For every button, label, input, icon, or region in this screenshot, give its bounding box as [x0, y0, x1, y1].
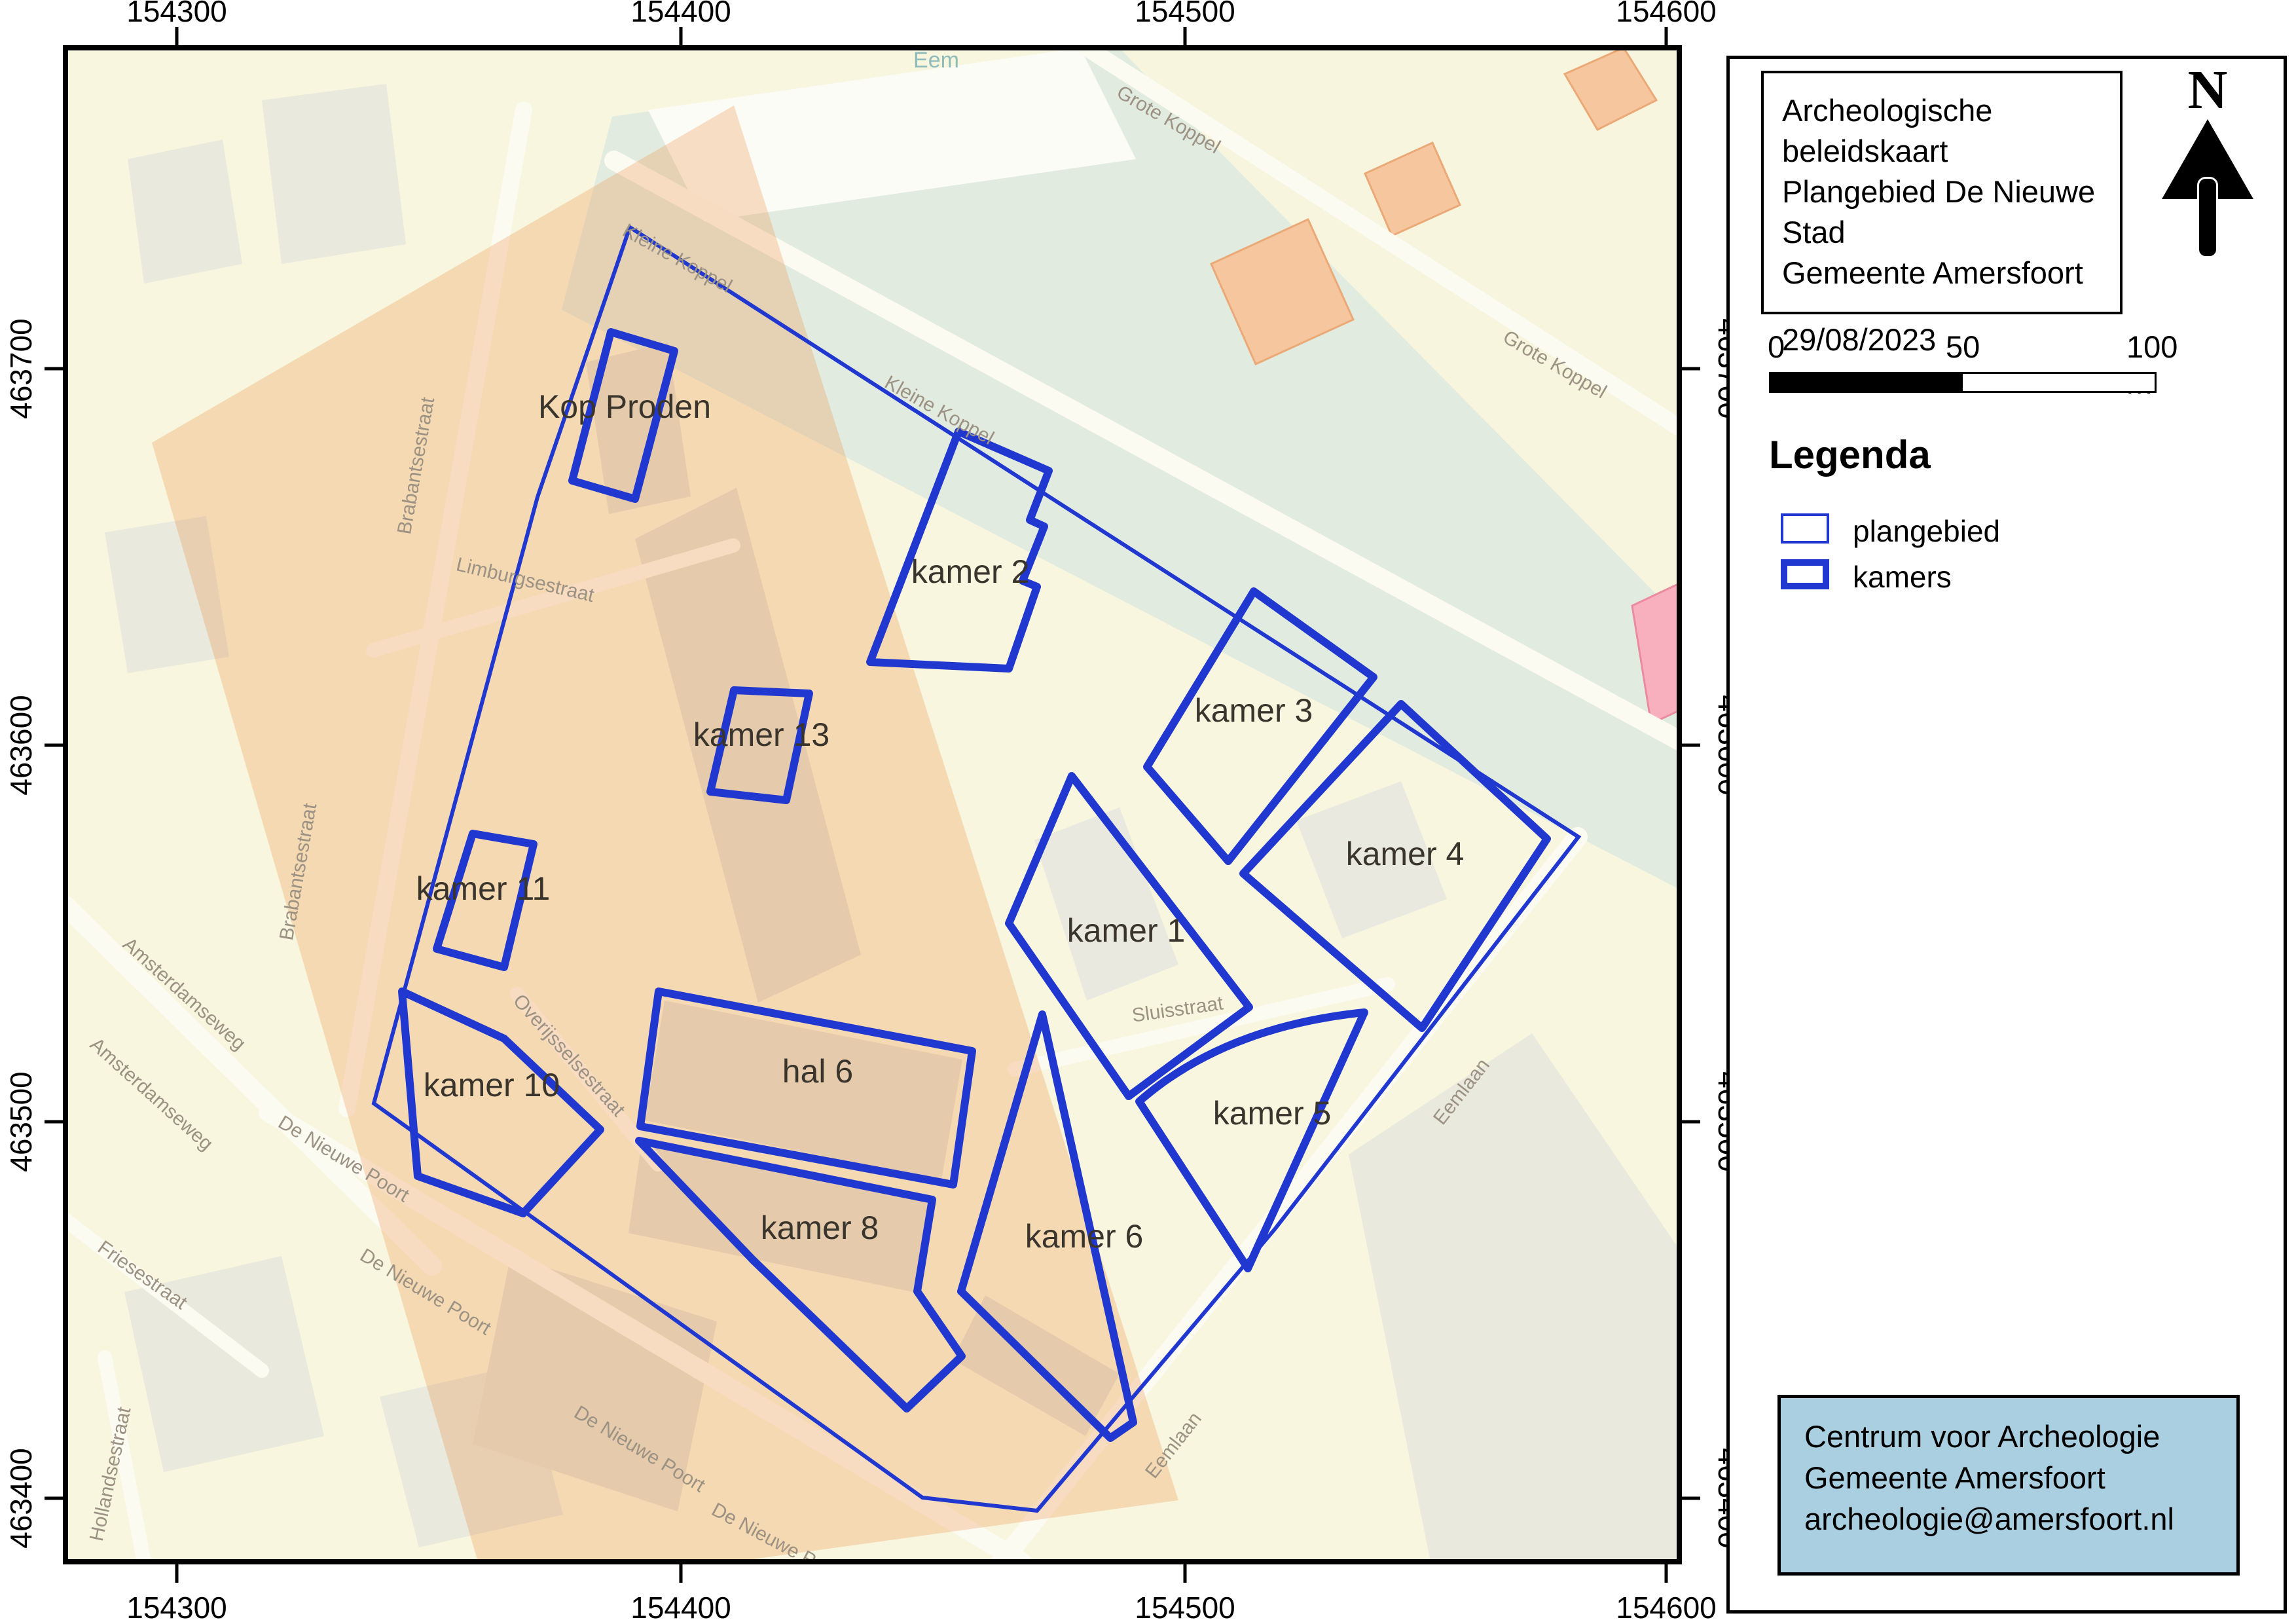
- kamer-label-kamer-8: kamer 8: [761, 1209, 879, 1246]
- tick-label-top: 154500: [1135, 0, 1235, 28]
- kamer-label-kamer-4: kamer 4: [1346, 836, 1465, 872]
- kamer-label-kop-proden: Kop Proden: [538, 388, 711, 425]
- scale-bar: [1769, 372, 2157, 393]
- scale-label-50: 50: [1946, 329, 1980, 365]
- contact-line: Centrum voor Archeologie: [1804, 1416, 2213, 1458]
- legend-label-plangebied: plangebied: [1853, 513, 2000, 549]
- kamer-label-kamer-2: kamer 2: [911, 553, 1030, 590]
- kamer-label-hal-6: hal 6: [782, 1053, 853, 1090]
- title-line: Gemeente Amersfoort: [1782, 253, 2102, 293]
- kamer-label-kamer-10: kamer 10: [424, 1067, 560, 1103]
- tick-label-top: 154300: [126, 0, 227, 28]
- title-line: Archeologische: [1782, 90, 2102, 131]
- tick-label-top: 154600: [1616, 0, 1717, 28]
- tick-label-top: 154400: [630, 0, 731, 28]
- kamer-label-kamer-3: kamer 3: [1195, 692, 1313, 729]
- kamer-label-kamer-6: kamer 6: [1025, 1218, 1144, 1255]
- contact-line: archeologie@amersfoort.nl: [1804, 1499, 2213, 1540]
- kamer-label-kamer-5: kamer 5: [1213, 1095, 1332, 1132]
- map-title-box: Archeologische beleidskaart Plangebied D…: [1761, 71, 2123, 314]
- grey-block-5: [128, 139, 242, 284]
- contact-box: Centrum voor Archeologie Gemeente Amersf…: [1777, 1395, 2240, 1576]
- title-line: beleidskaart: [1782, 131, 2102, 172]
- map-side-panel: Archeologische beleidskaart Plangebied D…: [1726, 56, 2287, 1614]
- north-letter: N: [2155, 63, 2260, 118]
- legend-label-kamers: kamers: [1853, 559, 1952, 595]
- tick-label-bottom: 154500: [1135, 1591, 1235, 1624]
- tick-label-left: 463400: [4, 1448, 38, 1549]
- tick-label-left: 463500: [4, 1071, 38, 1172]
- title-line: Plangebied De Nieuwe Stad: [1782, 172, 2102, 253]
- scale-bar-filled-half: [1771, 374, 1963, 391]
- legend-title: Legenda: [1769, 432, 1931, 477]
- street-label: Eem: [913, 48, 959, 73]
- kamers-swatch: [1781, 559, 1829, 589]
- kamer-label-kamer-11: kamer 11: [416, 870, 551, 907]
- kamer-label-kamer-13: kamer 13: [693, 716, 829, 753]
- tick-label-left: 463700: [4, 318, 38, 419]
- tick-label-bottom: 154300: [126, 1591, 227, 1624]
- scale-labels: 0 50 100 m: [1768, 329, 2187, 364]
- contact-line: Gemeente Amersfoort: [1804, 1458, 2213, 1499]
- tick-label-left: 463600: [4, 695, 38, 796]
- north-arrow-icon: N: [2155, 63, 2260, 258]
- tick-label-bottom: 154400: [630, 1591, 731, 1624]
- north-arrow-stem: [2197, 177, 2218, 258]
- kamer-label-kamer-1: kamer 1: [1067, 912, 1186, 949]
- map-interior: Kleine KoppelKleine KoppelGrote KoppelGr…: [65, 48, 1679, 1588]
- scale-label-0: 0: [1768, 329, 1785, 365]
- tick-label-bottom: 154600: [1616, 1591, 1717, 1624]
- plangebied-swatch: [1781, 513, 1829, 544]
- grey-block-1: [262, 84, 406, 264]
